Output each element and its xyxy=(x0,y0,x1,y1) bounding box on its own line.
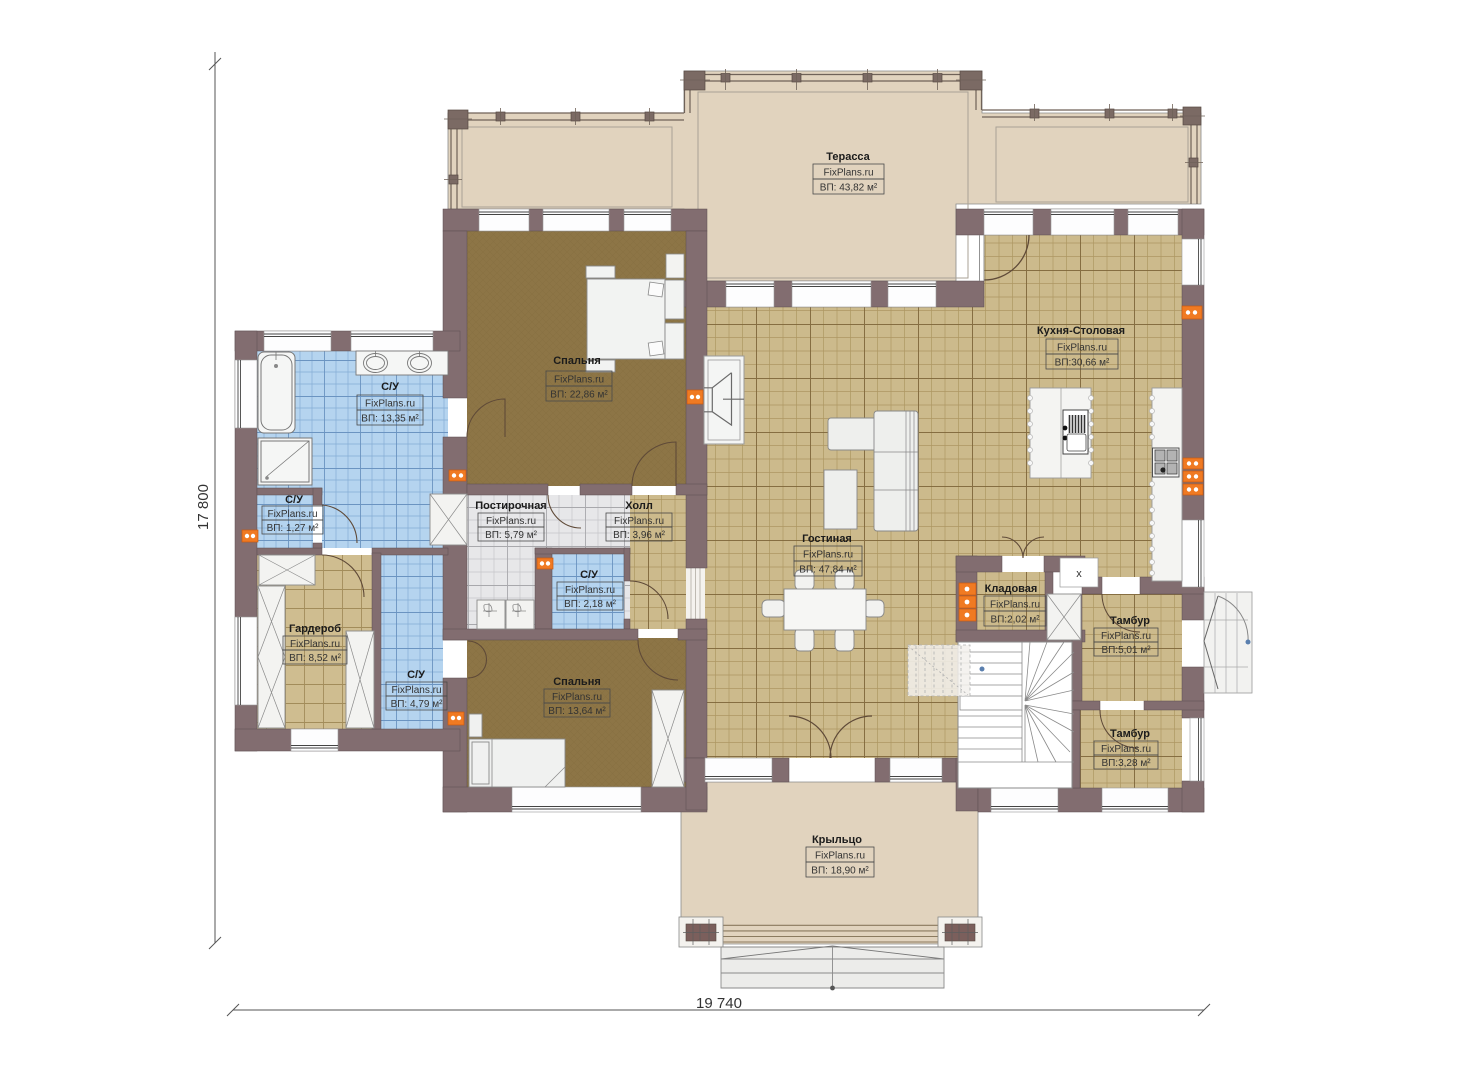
svg-text:ВП:3,28 м²: ВП:3,28 м² xyxy=(1101,758,1151,769)
svg-text:FixPlans.ru: FixPlans.ru xyxy=(1057,343,1107,354)
svg-text:С/У: С/У xyxy=(381,381,399,393)
svg-text:FixPlans.ru: FixPlans.ru xyxy=(267,509,317,520)
svg-text:Спальня: Спальня xyxy=(553,355,601,367)
svg-text:x: x xyxy=(1076,568,1082,580)
svg-text:ВП: 13,35 м²: ВП: 13,35 м² xyxy=(361,414,419,425)
svg-text:С/У: С/У xyxy=(285,494,303,506)
svg-text:FixPlans.ru: FixPlans.ru xyxy=(554,375,604,386)
svg-text:FixPlans.ru: FixPlans.ru xyxy=(365,399,415,410)
svg-text:ВП: 43,82 м²: ВП: 43,82 м² xyxy=(820,183,878,194)
svg-text:FixPlans.ru: FixPlans.ru xyxy=(565,585,615,596)
svg-text:ВП:30,66 м²: ВП:30,66 м² xyxy=(1055,358,1110,369)
svg-text:FixPlans.ru: FixPlans.ru xyxy=(803,550,853,561)
svg-text:ВП: 18,90 м²: ВП: 18,90 м² xyxy=(811,866,869,877)
svg-text:Постирочная: Постирочная xyxy=(475,500,546,512)
svg-text:ВП: 13,64 м²: ВП: 13,64 м² xyxy=(548,706,606,717)
svg-text:Терасса: Терасса xyxy=(826,151,870,163)
svg-text:FixPlans.ru: FixPlans.ru xyxy=(823,168,873,179)
svg-text:FixPlans.ru: FixPlans.ru xyxy=(1101,744,1151,755)
svg-text:19 740: 19 740 xyxy=(696,995,742,1012)
svg-text:17 800: 17 800 xyxy=(195,484,212,530)
svg-text:ВП: 4,79 м²: ВП: 4,79 м² xyxy=(391,699,444,710)
svg-text:Холл: Холл xyxy=(625,500,653,512)
svg-text:FixPlans.ru: FixPlans.ru xyxy=(815,851,865,862)
svg-text:ВП: 2,18 м²: ВП: 2,18 м² xyxy=(564,599,617,610)
svg-text:FixPlans.ru: FixPlans.ru xyxy=(1101,631,1151,642)
svg-text:Гардероб: Гардероб xyxy=(289,623,341,635)
svg-text:Тамбур: Тамбур xyxy=(1110,615,1150,627)
svg-text:ВП:5,01 м²: ВП:5,01 м² xyxy=(1101,645,1151,656)
svg-text:С/У: С/У xyxy=(580,569,598,581)
svg-text:ВП: 8,52 м²: ВП: 8,52 м² xyxy=(289,653,342,664)
svg-text:ВП: 47,84 м²: ВП: 47,84 м² xyxy=(799,565,857,576)
svg-text:Кухня-Столовая: Кухня-Столовая xyxy=(1037,325,1125,337)
svg-text:FixPlans.ru: FixPlans.ru xyxy=(486,516,536,527)
svg-text:ВП: 3,96 м²: ВП: 3,96 м² xyxy=(613,530,666,541)
svg-text:ВП: 1,27 м²: ВП: 1,27 м² xyxy=(267,523,320,534)
svg-text:Тамбур: Тамбур xyxy=(1110,728,1150,740)
svg-text:Гостиная: Гостиная xyxy=(802,533,852,545)
svg-text:FixPlans.ru: FixPlans.ru xyxy=(391,685,441,696)
svg-text:Крыльцо: Крыльцо xyxy=(812,834,862,846)
svg-text:FixPlans.ru: FixPlans.ru xyxy=(290,639,340,650)
svg-text:FixPlans.ru: FixPlans.ru xyxy=(552,692,602,703)
svg-text:Кладовая: Кладовая xyxy=(985,583,1038,595)
svg-text:Спальня: Спальня xyxy=(553,676,601,688)
svg-text:ВП: 22,86 м²: ВП: 22,86 м² xyxy=(550,390,608,401)
svg-text:FixPlans.ru: FixPlans.ru xyxy=(614,516,664,527)
svg-text:С/У: С/У xyxy=(407,669,425,681)
svg-text:FixPlans.ru: FixPlans.ru xyxy=(990,600,1040,611)
svg-text:ВП:2,02 м²: ВП:2,02 м² xyxy=(990,615,1040,626)
svg-text:ВП: 5,79 м²: ВП: 5,79 м² xyxy=(485,530,538,541)
